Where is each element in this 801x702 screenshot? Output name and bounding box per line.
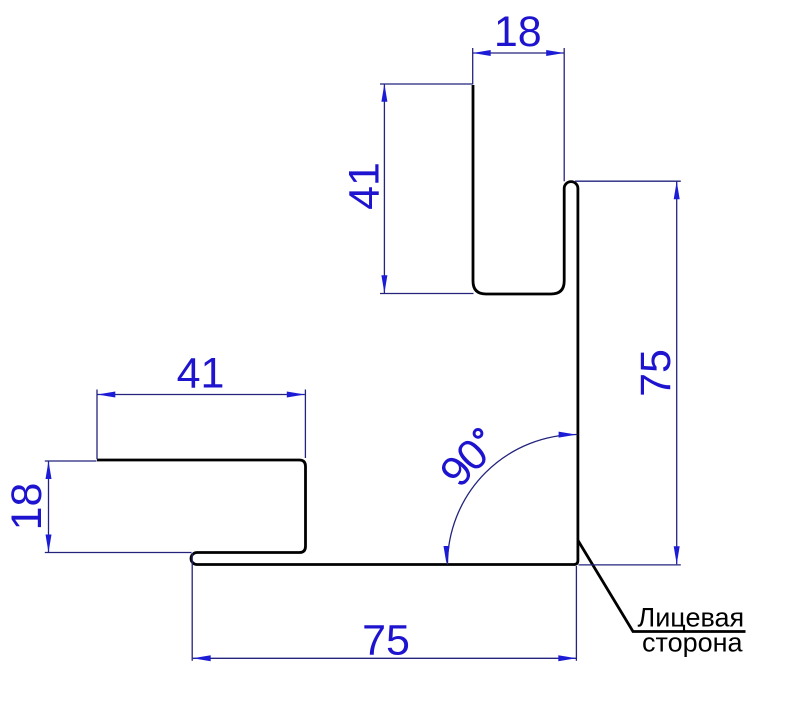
svg-text:41: 41 — [340, 162, 388, 210]
svg-text:18: 18 — [3, 483, 51, 531]
svg-text:41: 41 — [177, 350, 225, 398]
svg-text:сторона: сторона — [642, 627, 744, 657]
svg-text:75: 75 — [362, 616, 410, 664]
svg-text:18: 18 — [494, 8, 542, 56]
svg-text:75: 75 — [632, 349, 680, 397]
